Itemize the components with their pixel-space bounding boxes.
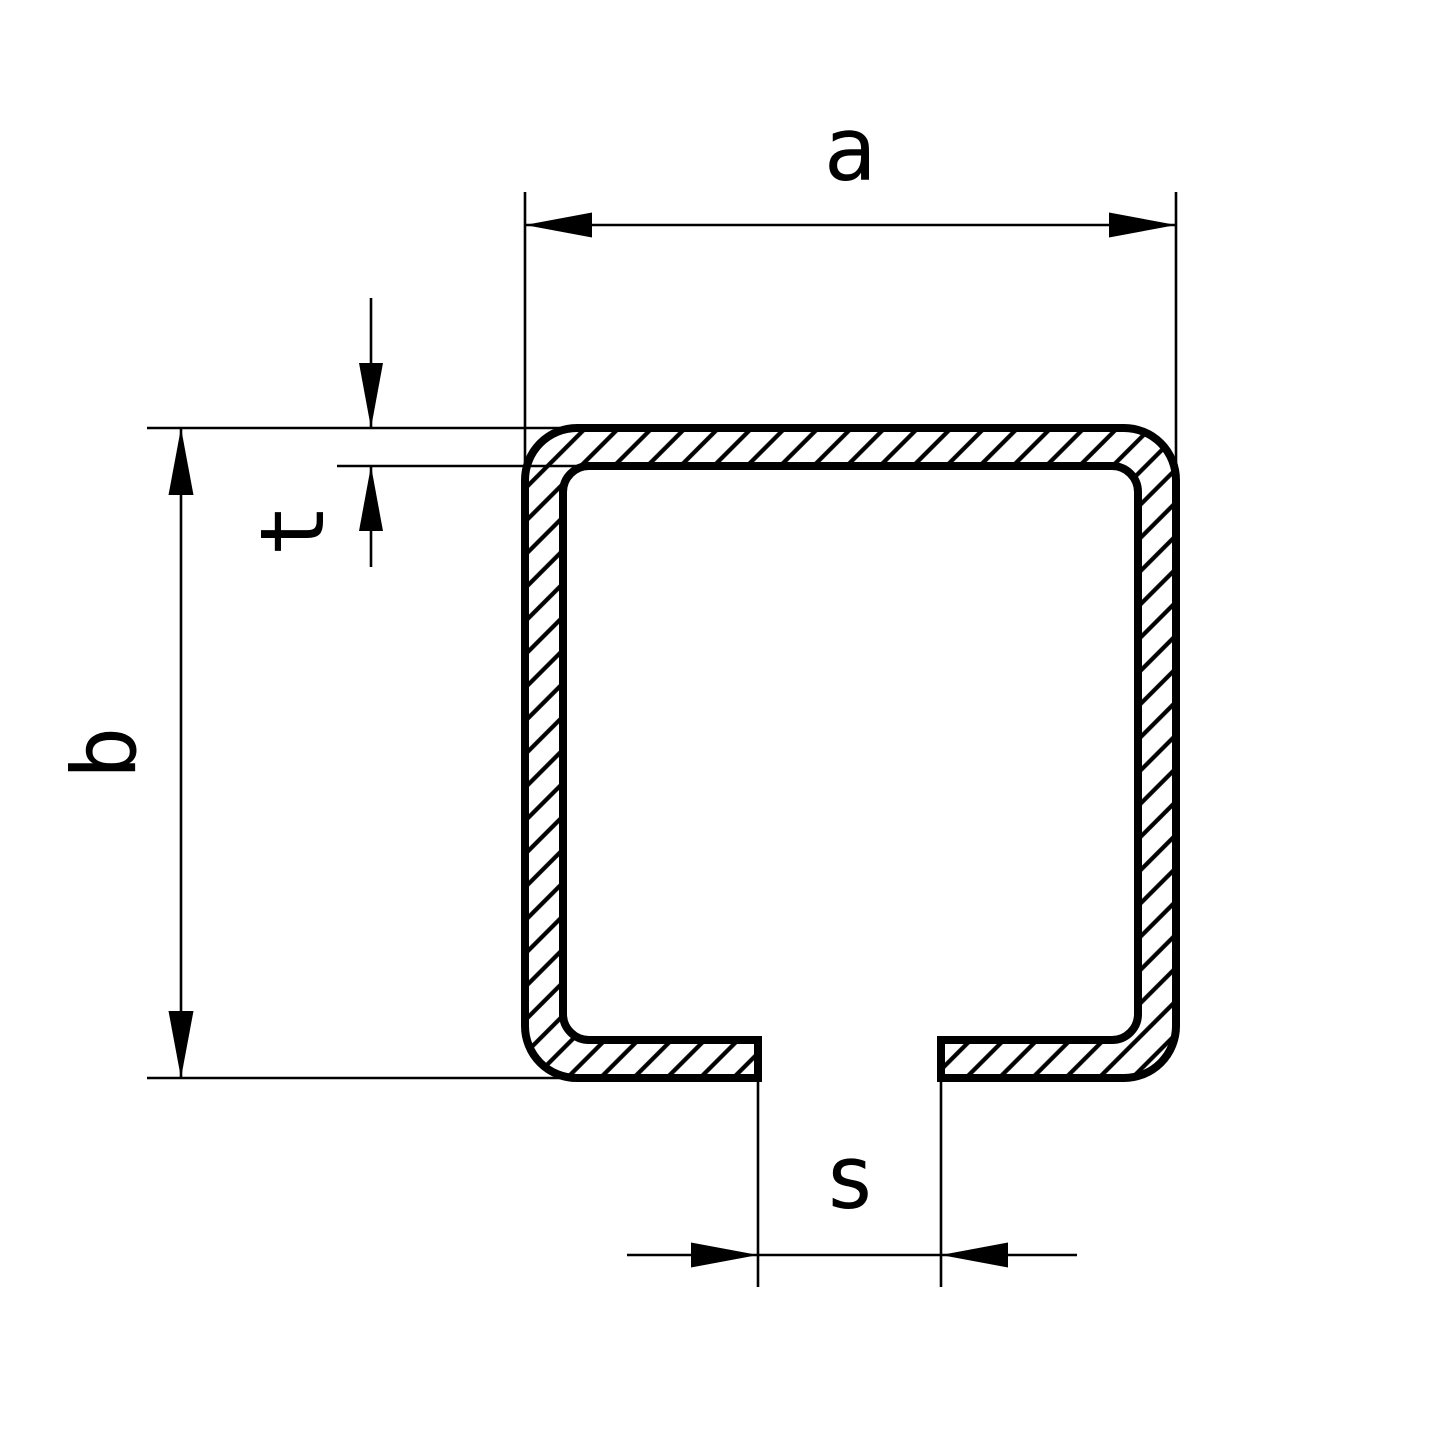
dim-b-arrowhead-top [169,428,194,495]
dim-a-label: a [824,98,877,201]
dim-a-arrowhead-left [525,213,592,238]
dim-t-arrowhead-down [359,363,383,428]
drawing-sheet: a b t s [0,0,1440,1440]
dim-s-arrowhead-left [691,1243,758,1268]
dim-t-arrowhead-up [359,466,383,531]
dim-t-label: t [241,504,344,557]
engineering-drawing-canvas: a b t s [0,0,1440,1440]
dim-b-label: b [53,727,156,780]
dim-a-arrowhead-right [1109,213,1176,238]
dim-s-label: s [824,1126,877,1229]
dim-s-arrowhead-right [941,1243,1008,1268]
dimension-s: s [627,1082,1077,1287]
c-profile-cross-section [525,428,1176,1078]
dim-b-arrowhead-bottom [169,1011,194,1078]
